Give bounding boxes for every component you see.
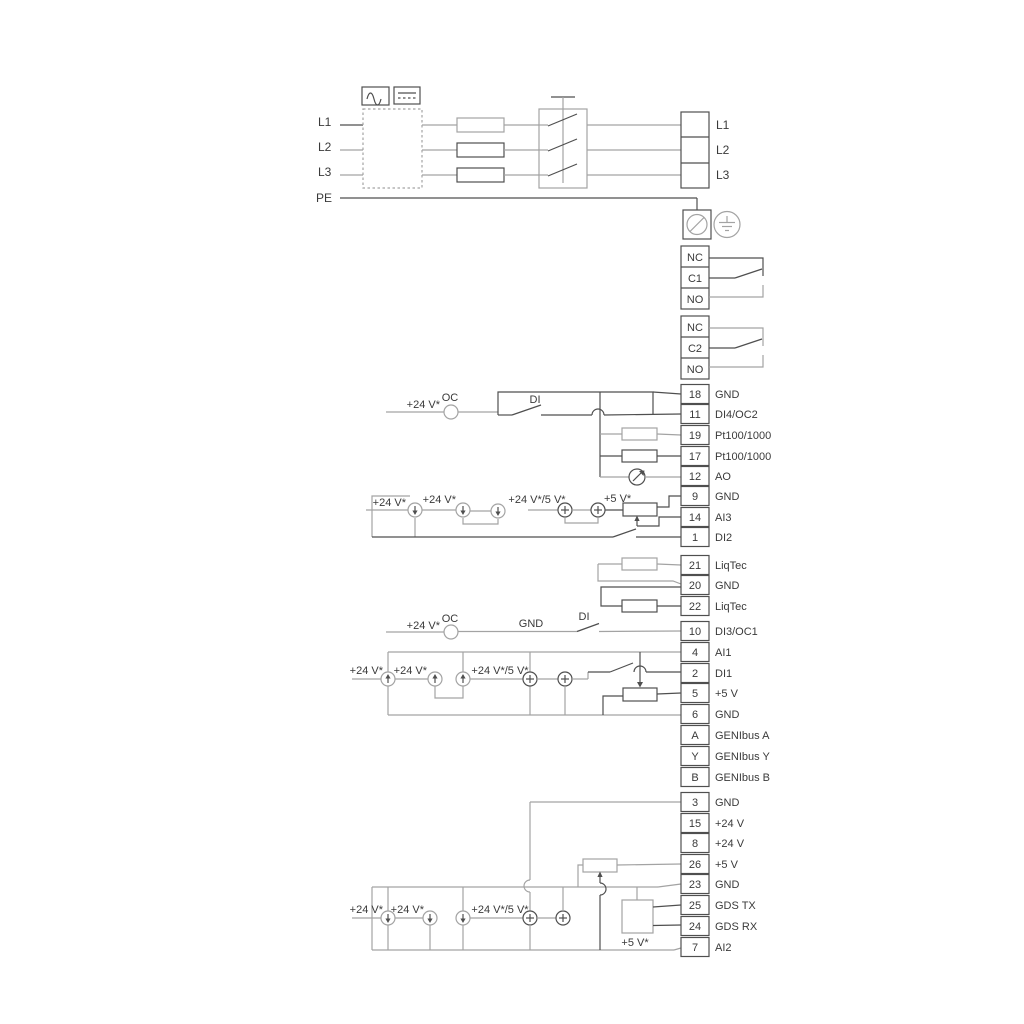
terminal-number: 26 xyxy=(689,859,701,871)
terminal-number: 9 xyxy=(692,491,698,503)
current-source-circle xyxy=(456,672,470,686)
pe-wire xyxy=(340,198,697,210)
terminal-label: Pt100/1000 xyxy=(715,451,771,463)
open-collector-circle xyxy=(444,405,458,419)
pt100-resistor-1 xyxy=(622,428,657,440)
potentiometer xyxy=(623,503,657,526)
terminal-number: 20 xyxy=(689,580,701,592)
terminal-label: GND xyxy=(715,491,740,503)
relay2-c2: C2 xyxy=(688,343,702,355)
input-label-l2: L2 xyxy=(318,140,332,154)
terminal-label: GND xyxy=(715,389,740,401)
input-label-l1: L1 xyxy=(318,115,332,129)
pump-wiring-diagram: L1 L2 L3 PE L1 L2 L3 NC C1 NO NC C2 NO 1… xyxy=(0,0,1024,1024)
terminal-label: DI4/OC2 xyxy=(715,409,758,421)
terminal-number: 2 xyxy=(692,668,698,680)
terminal-label: GENIbus Y xyxy=(715,751,770,763)
terminal-number: 12 xyxy=(689,471,701,483)
terminal-number: 1 xyxy=(692,532,698,544)
terminal-number: 10 xyxy=(689,626,701,638)
supply-label: +24 V* xyxy=(350,665,384,677)
terminal-number: 17 xyxy=(689,451,701,463)
terminal-number: 23 xyxy=(689,879,701,891)
output-label-l3: L3 xyxy=(716,168,730,182)
wiring-diagram-page: L1 L2 L3 PE L1 L2 L3 NC C1 NO NC C2 NO 1… xyxy=(0,0,1024,1024)
di-label: DI xyxy=(579,611,590,623)
supply-label: +24 V* xyxy=(350,904,384,916)
terminal-number: A xyxy=(691,730,699,742)
supply-label: +24 V* xyxy=(391,904,425,916)
supply-label: +24 V* xyxy=(407,620,441,632)
terminal-number: 7 xyxy=(692,942,698,954)
liqtec-resistor-1 xyxy=(622,558,657,570)
io1-wiring xyxy=(366,392,681,537)
terminal-label: AI1 xyxy=(715,647,732,659)
dc-symbol-icon xyxy=(394,87,420,104)
terminal-label: LiqTec xyxy=(715,601,747,613)
terminal-label: AI2 xyxy=(715,942,732,954)
wire-hop xyxy=(600,883,606,895)
supply-label: +24 V* xyxy=(373,497,407,509)
terminal-number: 14 xyxy=(689,512,701,524)
terminal-number: 3 xyxy=(692,797,698,809)
terminal-label: +24 V xyxy=(715,838,745,850)
terminal-number: 15 xyxy=(689,818,701,830)
ac-symbol-icon xyxy=(362,87,389,105)
current-source-circle xyxy=(456,503,470,517)
supply-label: +24 V*/5 V* xyxy=(471,665,529,677)
terminal-label: AO xyxy=(715,471,731,483)
current-source-circle xyxy=(491,504,505,518)
open-collector-circle xyxy=(444,625,458,639)
terminal-label: DI2 xyxy=(715,532,732,544)
main-switch xyxy=(539,97,587,188)
terminal-label: +24 V xyxy=(715,818,745,830)
terminal-number: 11 xyxy=(689,409,700,421)
terminal-label: GENIbus B xyxy=(715,772,770,784)
oc-label: OC xyxy=(442,392,459,404)
potentiometer xyxy=(583,859,617,882)
terminal-label: AI3 xyxy=(715,512,732,524)
supply-label: +5 V* xyxy=(604,493,632,505)
terminal-label: GND xyxy=(715,797,740,809)
mains-section xyxy=(340,87,740,239)
output-label-l2: L2 xyxy=(716,143,730,157)
pe-terminal xyxy=(683,210,711,239)
terminal-number: 5 xyxy=(692,688,698,700)
voltage-source-circle xyxy=(558,672,572,686)
supply-label: +24 V*/5 V* xyxy=(508,494,566,506)
di-label: DI xyxy=(530,394,541,406)
output-label-l1: L1 xyxy=(716,118,730,132)
liqtec-resistor-2 xyxy=(622,600,657,612)
wire-hop xyxy=(524,880,530,892)
relay1-nc: NC xyxy=(687,252,703,264)
terminal-number: 22 xyxy=(689,601,701,613)
supply-label: +24 V*/5 V* xyxy=(471,904,529,916)
voltage-source-circle xyxy=(591,503,605,517)
terminal-label: DI1 xyxy=(715,668,732,680)
terminal-label: LiqTec xyxy=(715,560,747,572)
terminal-label: GDS RX xyxy=(715,921,758,933)
terminal-label: GND xyxy=(715,879,740,891)
pt100-resistor-2 xyxy=(622,450,657,462)
io2-wiring xyxy=(352,652,681,715)
terminal-label: GND xyxy=(715,580,740,592)
potentiometer xyxy=(623,688,657,701)
input-label-pe: PE xyxy=(316,191,332,205)
relay1-no: NO xyxy=(687,294,704,306)
analog-meter-icon xyxy=(629,469,645,485)
terminal-label: DI3/OC1 xyxy=(715,626,758,638)
fuse-l3 xyxy=(457,168,504,182)
terminal-label: Pt100/1000 xyxy=(715,430,771,442)
terminal-number: 19 xyxy=(689,430,701,442)
supply-label: +24 V* xyxy=(394,665,428,677)
terminal-number: 8 xyxy=(692,838,698,850)
supply-label: +24 V* xyxy=(423,494,457,506)
oc-label: OC xyxy=(442,613,459,625)
input-label-l3: L3 xyxy=(318,165,332,179)
terminal-label: GND xyxy=(715,709,740,721)
di1-switch-blade xyxy=(610,663,633,672)
terminal-label: GENIbus A xyxy=(715,730,770,742)
supply-label: +24 V* xyxy=(407,399,441,411)
terminal-number: 21 xyxy=(689,560,701,572)
terminal-number: 25 xyxy=(689,900,701,912)
liqtec-wiring xyxy=(598,558,681,612)
di-switch-blade xyxy=(512,405,541,415)
supply-label: +5 V* xyxy=(621,937,649,949)
terminal-label: +5 V xyxy=(715,859,739,871)
current-source-circle xyxy=(423,911,437,925)
current-source-circle xyxy=(456,911,470,925)
terminal-number: 6 xyxy=(692,709,698,721)
di3-switch-blade xyxy=(577,624,599,632)
terminal-label: GDS TX xyxy=(715,900,756,912)
relay2-nc: NC xyxy=(687,322,703,334)
converter-dashed-box xyxy=(363,109,422,188)
current-source-circle xyxy=(428,672,442,686)
terminal-number: Y xyxy=(691,751,699,763)
wire-hop xyxy=(592,409,604,415)
terminal-label: +5 V xyxy=(715,688,739,700)
terminal-number: 18 xyxy=(689,389,701,401)
terminal-number: 4 xyxy=(692,647,698,659)
fuse-l1 xyxy=(457,118,504,132)
current-source-circle xyxy=(408,503,422,517)
io3-wiring xyxy=(352,802,681,950)
earth-icon xyxy=(714,212,740,238)
fuse-l2 xyxy=(457,143,504,157)
terminal-number: 24 xyxy=(689,921,701,933)
voltage-source-circle xyxy=(556,911,570,925)
gnd-label: GND xyxy=(519,618,544,630)
di2-switch-blade xyxy=(613,529,636,537)
relay2-no: NO xyxy=(687,364,704,376)
relay1-c1: C1 xyxy=(688,273,702,285)
terminal-number: B xyxy=(691,772,698,784)
power-terminal-block xyxy=(681,112,709,188)
gds-sensor-box xyxy=(622,900,653,933)
